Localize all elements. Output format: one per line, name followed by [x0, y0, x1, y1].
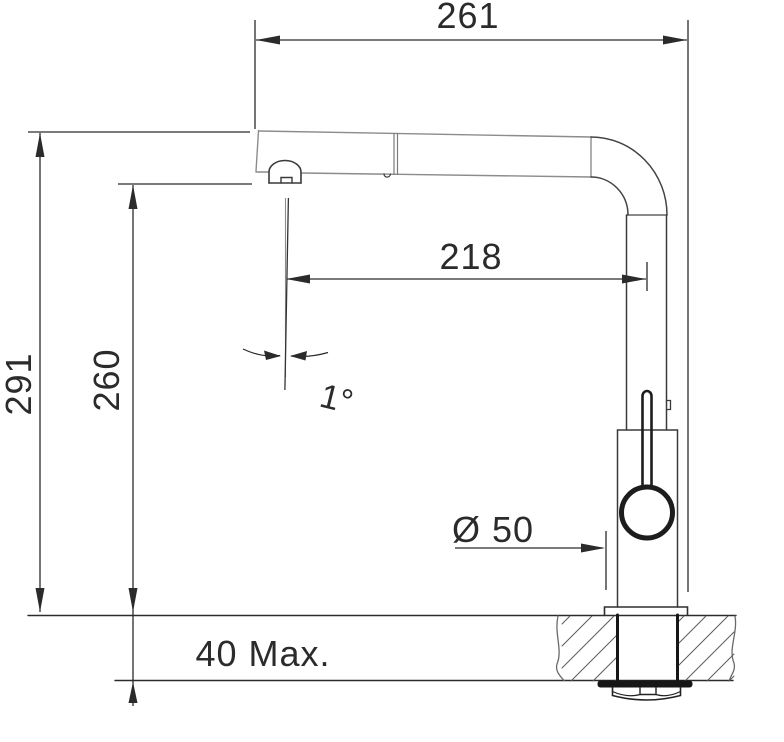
angle-label: 1°	[316, 377, 357, 422]
elbow-inner-curve	[591, 177, 628, 215]
spout-left-edge	[256, 131, 259, 172]
mounting-nut-facet-right	[656, 692, 681, 696]
counter-break-edge-right	[730, 616, 736, 681]
technical-drawing-page: 261 291 260 40 Max. 218 1°	[0, 0, 784, 742]
dimension-angle: 1°	[243, 198, 357, 422]
dim-291-label: 291	[0, 352, 39, 415]
arrowhead-right	[663, 36, 687, 45]
faucet-dimension-drawing: 261 291 260 40 Max. 218 1°	[0, 0, 784, 742]
arrowhead-40max	[129, 682, 138, 703]
aerator-notch	[281, 178, 292, 184]
handle-stem	[643, 391, 652, 487]
spout-bottom-edge-right	[301, 173, 591, 177]
washer	[598, 681, 693, 688]
dim-40max-label: 40 Max.	[195, 633, 330, 674]
dim-261-label: 261	[436, 0, 499, 36]
angle-arrowhead-right	[290, 351, 307, 361]
counter-break-edge-left	[557, 616, 564, 681]
mounting-nut-outline	[613, 688, 681, 701]
arrowhead	[581, 544, 605, 553]
arrowhead-top	[129, 185, 138, 209]
arrowhead-left	[256, 36, 280, 45]
arrowhead-left	[286, 275, 310, 284]
diameter-label: Ø 50	[452, 509, 534, 550]
handle-ring	[622, 487, 673, 538]
dim-218-label: 218	[439, 236, 502, 277]
angle-arrowhead-left	[264, 351, 281, 361]
spray-head-dome	[269, 161, 301, 184]
arrowhead-top	[36, 133, 45, 157]
arrowhead-bottom	[36, 588, 45, 612]
elbow-outer-curve	[591, 137, 667, 215]
spout-top-edge	[259, 131, 591, 137]
countertop-section	[28, 615, 736, 700]
arrowhead-right	[622, 275, 646, 284]
dimension-218: 218	[286, 236, 647, 291]
hatching-left	[562, 616, 617, 681]
arrowhead-bottom	[129, 588, 138, 612]
hatching-right	[678, 616, 734, 681]
mounting-nut-facet-left	[613, 692, 641, 696]
dim-260-label: 260	[86, 348, 127, 411]
mounting-nut-facet-center	[640, 688, 656, 695]
dimension-diameter: Ø 50	[452, 509, 606, 590]
dimension-260-and-40max: 260 40 Max.	[86, 184, 331, 706]
